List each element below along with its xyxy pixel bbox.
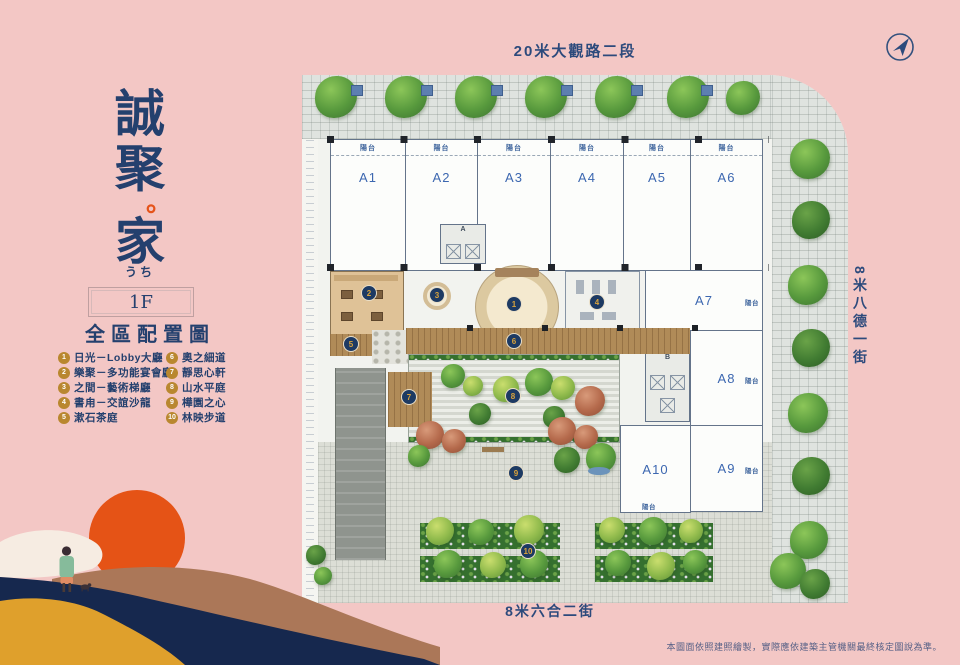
title-subtitle: うち [98,263,182,280]
tree-icon [639,517,667,545]
legend-number-badge: 9 [166,397,178,409]
core-A: A [440,224,486,264]
tree-icon [605,550,631,576]
project-title: 誠 聚 。 家 [98,86,182,269]
tree-icon [647,552,675,580]
table-icon [341,312,353,321]
legend-label: 日光－Lobby大廳 [74,350,163,365]
elevator-shaft-icon [446,244,461,259]
balcony-label: 陽台 [745,465,759,475]
furniture-icon [580,312,594,320]
legend-column-1: 1日光－Lobby大廳 2樂聚－多功能宴會廳 3之間－藝術梯廳 4書甪－交誼沙龍… [58,352,173,427]
section-title: 全區配置圖 [30,318,270,347]
tree-icon [441,364,465,388]
plan-marker-7: 7 [401,389,417,405]
hedge-strip [409,355,619,360]
tree-icon [683,550,707,574]
legend-label: 樂聚－多功能宴會廳 [74,365,173,380]
tree-icon [551,376,575,400]
tree-icon [480,552,506,578]
tree-icon [514,515,544,545]
legend-item: 6奧之細道 [166,352,226,363]
legend-label: 書甪－交誼沙龍 [74,395,151,410]
floor-label-box: 1F [88,287,194,317]
legend-label: 樺園之心 [182,395,226,410]
unit-A10: A10 [620,425,691,513]
unit-A3: 陽台 A3 [477,139,551,271]
legend-item: 4書甪－交誼沙龍 [58,397,173,408]
brochure-page: { "brand": { "title_char_1": "誠", "title… [0,0,960,665]
legend-label: 靜思心軒 [182,365,226,380]
legend-label: 山水平庭 [182,380,226,395]
legend-item: 1日光－Lobby大廳 [58,352,173,363]
unit-label: A10 [642,462,668,477]
unit-label: A2 [406,170,477,185]
furniture-icon [576,280,584,294]
elevator-shaft-icon [660,398,675,413]
balcony-label: 陽台 [745,297,759,307]
legend-item: 2樂聚－多功能宴會廳 [58,367,173,378]
column-row [327,136,769,143]
bench-icon [482,447,504,452]
legend-number-badge: 4 [58,397,70,409]
unit-label: A6 [691,170,762,185]
legend-number-badge: 6 [166,352,178,364]
legend-number-badge: 5 [58,412,70,424]
plan-marker-10: 10 [520,543,536,559]
core-label: A [441,226,485,233]
plan-marker-4: 4 [589,294,605,310]
legend-number-badge: 10 [166,412,178,424]
unit-label: A9 [718,461,736,476]
unit-label: A1 [331,170,405,185]
tree-icon [463,376,483,396]
elevator-shaft-icon [650,375,665,390]
unit-label: A3 [478,170,550,185]
legend-number-badge: 8 [166,382,178,394]
legend-number-badge: 1 [58,352,70,364]
tree-icon [469,403,491,425]
street-label-right: 8米八德一街 [850,266,870,368]
flower-planter-icon [631,85,643,96]
counter [334,275,398,281]
table-icon [341,290,353,299]
table-icon [371,312,383,321]
tree-icon [679,519,703,543]
legend-label: 漱石茶庭 [74,410,118,425]
unit-A5: 陽台 A5 [623,139,691,271]
furniture-icon [608,280,616,294]
sunset-illustration [0,475,440,665]
unit-A1: 陽台 A1 [330,139,406,271]
legend-label: 之間－藝術梯廳 [74,380,151,395]
legend-item: 9樺園之心 [166,397,226,408]
plan-marker-9: 9 [508,465,524,481]
wood-walkway [406,328,690,354]
plan-marker-1: 1 [506,296,522,312]
legend-item: 5漱石茶庭 [58,412,173,423]
planter-box [595,523,713,549]
legend-item: 7靜思心軒 [166,367,226,378]
elevator-shaft-icon [465,244,480,259]
unit-label: A7 [695,293,713,308]
furniture-icon [592,280,600,294]
tree-icon [575,386,605,416]
title-char: 家 [115,214,165,269]
plan-marker-6: 6 [506,333,522,349]
flower-planter-icon [701,85,713,96]
legend-column-2: 6奧之細道 7靜思心軒 8山水平庭 9樺園之心 10林映步道 [166,352,226,427]
core-B: B [645,352,690,422]
balcony-label: 陽台 [642,501,656,511]
unit-label: A5 [624,170,690,185]
street-label-top: 20米大觀路二段 [302,40,848,61]
north-compass-icon [884,31,916,63]
title-char: 誠 [115,86,165,141]
unit-A4: 陽台 A4 [550,139,624,271]
tree-icon [599,517,625,543]
unit-A6: 陽台 A6 [690,139,763,271]
balcony-label: 陽台 [745,375,759,385]
banquet-room [330,271,404,335]
pond [588,467,610,475]
legend-number-badge: 3 [58,382,70,394]
planter-box [420,556,560,582]
legend-label: 奧之細道 [182,350,226,365]
legend-item: 8山水平庭 [166,382,226,393]
reception-desk [495,268,539,277]
flower-planter-icon [421,85,433,96]
unit-label: A4 [551,170,623,185]
planter-box [420,523,560,549]
floor-label: 1F [129,292,153,313]
legend-number-badge: 2 [58,367,70,379]
sidewalk-top [302,75,848,139]
plan-marker-5: 5 [343,336,359,352]
plan-marker-2: 2 [361,285,377,301]
furniture-icon [602,312,616,320]
legend-item: 10林映步道 [166,412,226,423]
unit-label: A8 [718,371,736,386]
flower-planter-icon [561,85,573,96]
plan-marker-3: 3 [429,287,445,303]
planter-box [595,556,713,582]
legend-number-badge: 7 [166,367,178,379]
plan-marker-8: 8 [505,388,521,404]
disclaimer-text: 本圖面依照建照繪製，實際應依建築主管機關最終核定圖說為準。 [666,640,942,653]
legend-label: 林映步道 [182,410,226,425]
elevator-shaft-icon [670,375,685,390]
column-row [467,325,702,331]
tree-icon [525,368,553,396]
core-label: B [646,354,689,361]
flower-planter-icon [351,85,363,96]
tree-icon [468,519,494,545]
flower-planter-icon [491,85,503,96]
legend-item: 3之間－藝術梯廳 [58,382,173,393]
